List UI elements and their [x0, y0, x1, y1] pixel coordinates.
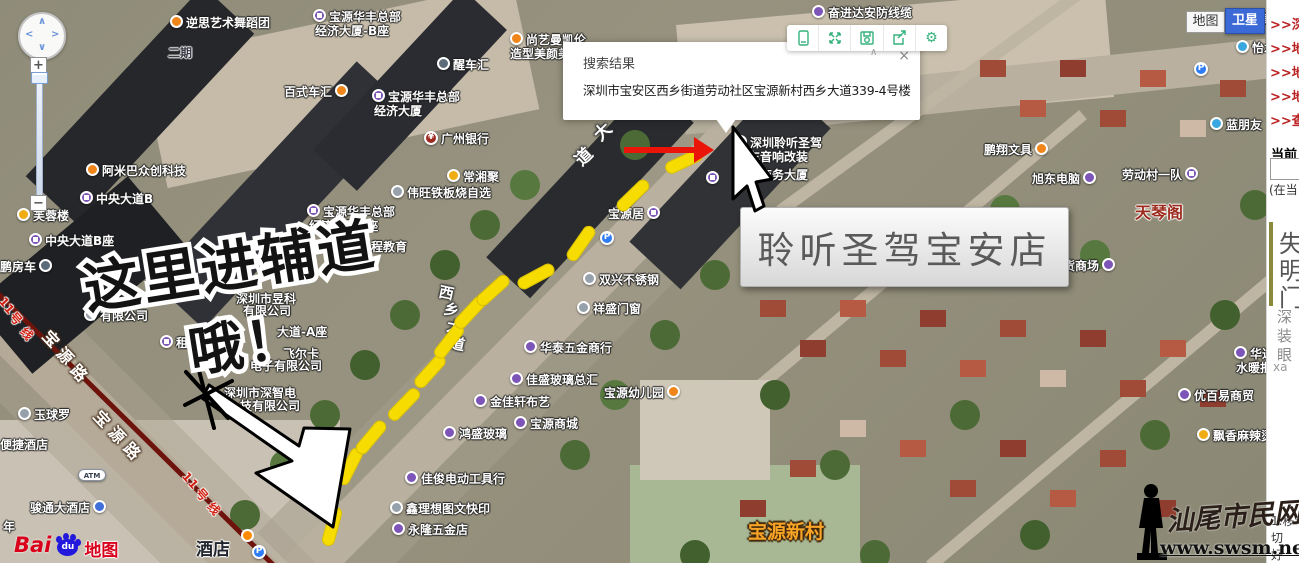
poi-label: 双兴不锈钢	[599, 271, 659, 288]
popup-address: 深圳市宝安区西乡街道劳动社区宝源新村西乡大道339-4号楼	[583, 80, 911, 99]
building-icon	[647, 206, 660, 219]
share-icon[interactable]	[884, 25, 916, 51]
red-arrow-head	[694, 137, 714, 163]
building-icon	[313, 9, 326, 22]
parking-icon: P	[600, 231, 614, 245]
toolbar-collapse-icon[interactable]: ∧	[870, 47, 877, 58]
poi-label: 造型美颜美	[510, 45, 570, 62]
satellite-view-button[interactable]: 卫星	[1225, 8, 1265, 34]
dot-icon	[86, 163, 99, 176]
poi-label: 玉球罗	[34, 406, 70, 423]
poi-鹏翔文具[interactable]: 鹏翔文具	[984, 141, 1048, 158]
poi-宝源幼儿园[interactable]: 宝源幼儿园	[604, 384, 680, 401]
shop-icon	[392, 522, 405, 535]
poi-祥盛门窗[interactable]: 祥盛门窗	[577, 300, 641, 317]
atm-icon: ATM	[78, 469, 106, 481]
poi-label: 劳动村一队	[1122, 166, 1182, 183]
poi-label: 水暖批发	[1236, 359, 1266, 376]
save-icon[interactable]	[851, 25, 883, 51]
poi-label: 逆思艺术舞蹈团	[186, 14, 270, 31]
poi-icon-marker[interactable]: P	[1194, 61, 1211, 76]
poi-阿米巴众创科技[interactable]: 阿米巴众创科技	[86, 162, 186, 179]
sidebar-link[interactable]: >>深圳	[1270, 14, 1299, 33]
building-icon	[706, 171, 719, 184]
poi-宝源新村[interactable]: 宝源新村	[748, 517, 824, 544]
poi-label: 飘香麻辣烫	[1213, 427, 1266, 444]
poi-label: 骏通大酒店	[30, 499, 90, 516]
restaurant-icon	[447, 169, 460, 182]
poi-label: 中央大道B	[96, 190, 153, 207]
baidu-maps-logo: Bai du 地图	[14, 533, 118, 561]
building-icon	[29, 233, 42, 246]
parking-icon: P	[252, 545, 266, 559]
poi-icon-marker[interactable]: ATM	[78, 468, 109, 481]
car-icon	[39, 259, 52, 272]
poi-华泰五金商行[interactable]: 华泰五金商行	[524, 339, 612, 356]
dot-icon	[1035, 142, 1048, 155]
poi-label: 常湘聚	[463, 168, 499, 185]
poi-label: 华泰五金商行	[540, 339, 612, 356]
poi-旭东电脑[interactable]: 旭东电脑	[1032, 170, 1096, 187]
poi-label: 经济大厦-B座	[315, 22, 389, 39]
sidebar-tip: 1.移动	[1271, 512, 1299, 529]
poi-label: 宝源新村	[748, 517, 824, 544]
mouse-cursor	[725, 120, 785, 220]
car-icon	[437, 57, 450, 70]
sidebar-link[interactable]: >>地图	[1270, 86, 1299, 105]
shop-icon	[443, 426, 456, 439]
poi-label: 奋进达安防线缆	[828, 4, 912, 21]
poi-经济大厦-B座[interactable]: 经济大厦-B座	[315, 22, 389, 39]
zoom-out-button[interactable]: −	[30, 195, 47, 211]
poi-佳俊电动工具行[interactable]: 佳俊电动工具行	[405, 470, 505, 487]
map-view-button[interactable]: 地图	[1186, 11, 1225, 33]
poi-label: 永隆五金店	[408, 521, 468, 538]
shop-icon	[812, 5, 825, 18]
store-tooltip: 聆听圣驾宝安店	[740, 207, 1069, 287]
zoom-track[interactable]	[36, 73, 43, 197]
fullscreen-icon[interactable]	[819, 25, 851, 51]
dot-icon	[391, 185, 404, 198]
shop-icon	[510, 372, 523, 385]
sidebar-link[interactable]: >>地图	[1270, 62, 1299, 81]
poi-骏通大酒店[interactable]: 骏通大酒店	[30, 499, 106, 516]
poi-label: 蓝朋友	[1226, 116, 1262, 133]
poi-便捷酒店[interactable]: 便捷酒店	[0, 436, 48, 453]
poi-伟旺铁板烧自选[interactable]: 伟旺铁板烧自选	[391, 184, 491, 201]
poi-经济大厦[interactable]: 经济大厦	[374, 102, 422, 119]
pan-right-icon[interactable]: >	[51, 29, 59, 40]
store-tooltip-text: 聆听圣驾宝安店	[758, 220, 1052, 274]
poi-金佳轩布艺[interactable]: 金佳轩布艺	[474, 393, 550, 410]
sidebar-tip: 切	[1271, 529, 1283, 546]
poi-label: 阿米巴众创科技	[102, 162, 186, 179]
restaurant-icon	[17, 208, 30, 221]
poi-label: 广州银行	[441, 130, 489, 147]
shop-icon	[474, 394, 487, 407]
sidebar-link[interactable]: >>地图	[1270, 38, 1299, 57]
poi-label: 二期	[168, 44, 192, 61]
baidu-maps-screenshot: 西乡大道西乡大道宝源路宝源路11号线11号线二期逆思艺术舞蹈团宝源华丰总部经济大…	[0, 0, 1299, 563]
poi-label: 鹏房车	[0, 258, 36, 275]
poi-宝源居[interactable]: 宝源居	[608, 205, 660, 222]
poi-鑫理想图文快印[interactable]: 鑫理想图文快印	[390, 500, 490, 517]
building-icon	[160, 335, 173, 348]
poi-优百易商贸[interactable]: 优百易商贸	[1178, 387, 1254, 404]
poi-label: 祥盛门窗	[593, 300, 641, 317]
poi-label: 鸿盛玻璃	[459, 425, 507, 442]
pan-up-icon[interactable]: ∧	[38, 16, 46, 27]
sidebar-link[interactable]: >>查询	[1270, 110, 1299, 129]
baidu-paw-icon: du	[55, 533, 81, 557]
dot-icon	[667, 385, 680, 398]
dot-icon	[577, 301, 590, 314]
zoom-in-button[interactable]: +	[30, 57, 47, 73]
poi-label: 旭东电脑	[1032, 170, 1080, 187]
dot-icon	[1236, 40, 1249, 53]
dot-icon	[170, 15, 183, 28]
poi-二期[interactable]: 二期	[168, 44, 192, 61]
parking-icon: P	[1194, 62, 1208, 76]
shop-icon	[1178, 388, 1191, 401]
poi-佳盛玻璃总汇[interactable]: 佳盛玻璃总汇	[510, 371, 598, 388]
shop-icon	[1083, 171, 1096, 184]
pan-left-icon[interactable]: <	[25, 29, 33, 40]
search-result-popup: 搜索结果 深圳市宝安区西乡街道劳动社区宝源新村西乡大道339-4号楼 ×	[563, 42, 920, 120]
poi-label: 鑫理想图文快印	[406, 500, 490, 517]
dot-icon	[390, 501, 403, 514]
sidebar-tip: 好	[1271, 546, 1283, 563]
poi-icon-marker[interactable]: P	[252, 544, 269, 559]
sidebar-body-char: 装	[1277, 325, 1292, 346]
dot-icon	[1210, 117, 1223, 130]
sidebar-tag: xa	[1273, 360, 1287, 374]
dot-icon	[18, 407, 31, 420]
poi-label: 百式车汇	[284, 83, 332, 100]
poi-劳动村一队[interactable]: 劳动村一队	[1122, 166, 1198, 183]
pan-control[interactable]: ∧ ∨ < >	[18, 12, 66, 60]
shop-icon	[405, 471, 418, 484]
shop-icon	[1234, 346, 1247, 359]
poi-label: 天琴阁	[1135, 199, 1183, 223]
poi-飘香麻辣烫[interactable]: 飘香麻辣烫	[1197, 427, 1266, 444]
zoom-thumb[interactable]	[31, 72, 48, 84]
building-icon	[1185, 167, 1198, 180]
poi-宝源商城[interactable]: 宝源商城	[514, 415, 578, 432]
poi-label: 佳盛玻璃总汇	[526, 371, 598, 388]
sidebar-input[interactable]	[1270, 158, 1299, 180]
poi-水暖批发[interactable]: 水暖批发	[1236, 359, 1266, 376]
shop-icon	[1102, 258, 1115, 271]
shop-icon	[524, 340, 537, 353]
building-icon	[80, 191, 93, 204]
poi-造型美颜美[interactable]: 造型美颜美	[510, 45, 570, 62]
poi-逆思艺术舞蹈团[interactable]: 逆思艺术舞蹈团	[170, 14, 270, 31]
right-sidebar: >>深圳>>地图>>地图>>地图>>查询 当前 (在当 失明门 深装眼 xa 1…	[1266, 0, 1299, 563]
sidebar-accent-bar	[1269, 222, 1273, 306]
poi-label: 宝源幼儿园	[604, 384, 664, 401]
map-toolbar: ⚙	[787, 25, 947, 51]
settings-gear-icon[interactable]: ⚙	[916, 25, 947, 51]
satellite-map-canvas[interactable]: 西乡大道西乡大道宝源路宝源路11号线11号线二期逆思艺术舞蹈团宝源华丰总部经济大…	[0, 0, 1266, 563]
poi-label: 经济大厦	[374, 102, 422, 119]
baidu-logo-du: du	[57, 539, 78, 556]
poi-玉球罗[interactable]: 玉球罗	[18, 406, 70, 423]
poi-蓝朋友[interactable]: 蓝朋友	[1210, 116, 1262, 133]
poi-双兴不锈钢[interactable]: 双兴不锈钢	[583, 271, 659, 288]
poi-label: 便捷酒店	[0, 436, 48, 453]
gear-glyph: ⚙	[925, 30, 938, 46]
poi-中央大道B[interactable]: 中央大道B	[80, 190, 153, 207]
shop-icon	[514, 416, 527, 429]
popup-title: 搜索结果	[583, 53, 635, 72]
dot-icon	[510, 32, 523, 45]
sidebar-note: (在当	[1269, 181, 1298, 198]
dot-icon	[583, 272, 596, 285]
poi-醒车汇[interactable]: 醒车汇	[437, 56, 489, 73]
poi-icon-marker[interactable]	[706, 170, 722, 184]
poi-icon-marker[interactable]: P	[600, 230, 617, 245]
village-lane-2	[926, 266, 1266, 563]
poi-label: 宝源商城	[530, 415, 578, 432]
poi-label: 鹏翔文具	[984, 141, 1032, 158]
hotel-icon	[93, 500, 106, 513]
dot-icon	[335, 84, 348, 97]
poi-label: 伟旺铁板烧自选	[407, 184, 491, 201]
poi-label: 优百易商贸	[1194, 387, 1254, 404]
red-arrow-shaft	[624, 147, 696, 153]
poi-永隆五金店[interactable]: 永隆五金店	[392, 521, 468, 538]
poi-鸿盛玻璃[interactable]: 鸿盛玻璃	[443, 425, 507, 442]
sidebar-body-char: 深	[1277, 306, 1292, 327]
bank-icon: ¥	[424, 131, 438, 145]
poi-广州银行[interactable]: ¥广州银行	[424, 130, 489, 147]
poi-鹏房车[interactable]: 鹏房车	[0, 258, 52, 275]
poi-百式车汇[interactable]: 百式车汇	[284, 83, 348, 100]
baidu-logo-bai: Bai	[14, 533, 51, 557]
poi-label: 醒车汇	[453, 56, 489, 73]
mobile-send-icon[interactable]	[787, 25, 819, 51]
poi-常湘聚[interactable]: 常湘聚	[447, 168, 499, 185]
restaurant-icon	[1197, 428, 1210, 441]
poi-怡水店[interactable]: 怡水店	[1236, 39, 1266, 56]
poi-label: 金佳轩布艺	[490, 393, 550, 410]
poi-天琴阁[interactable]: 天琴阁	[1135, 199, 1183, 223]
baidu-logo-ditu: 地图	[84, 536, 118, 561]
poi-label: 佳俊电动工具行	[421, 470, 505, 487]
pan-down-icon[interactable]: ∨	[38, 42, 46, 53]
poi-label: 怡水店	[1252, 39, 1266, 56]
poi-货商场[interactable]: 货商场	[1063, 257, 1115, 274]
poi-奋进达安防线缆[interactable]: 奋进达安防线缆	[812, 4, 912, 21]
view-toggle: 地图 卫星	[1186, 8, 1265, 34]
building-icon	[372, 89, 385, 102]
